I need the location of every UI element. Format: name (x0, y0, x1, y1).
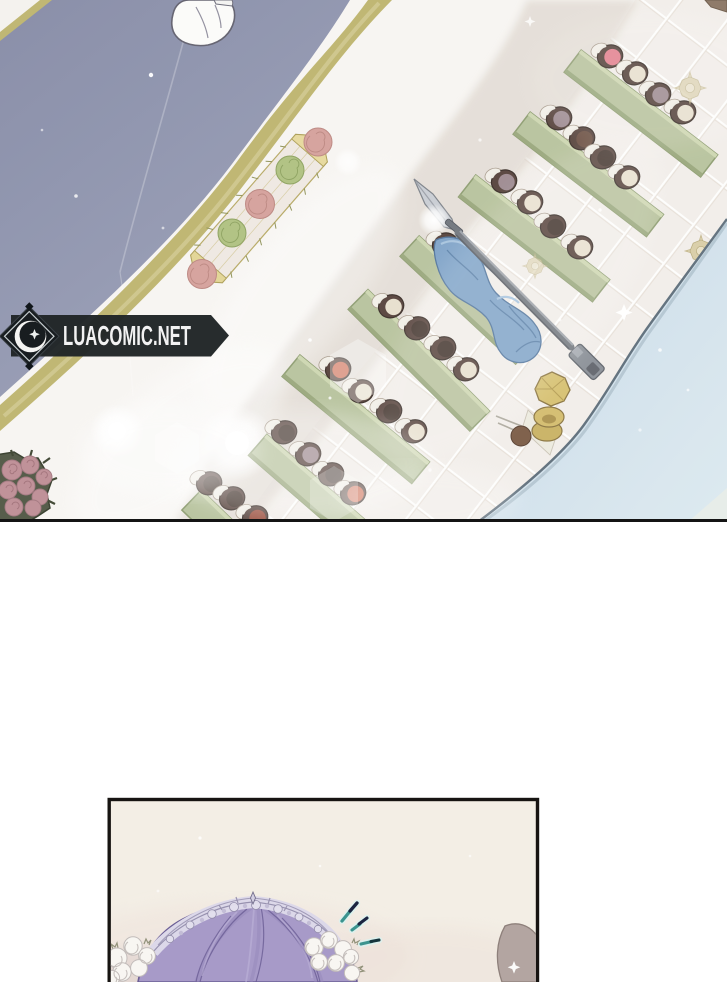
svg-text:LUACOMIC.NET: LUACOMIC.NET (63, 320, 191, 351)
